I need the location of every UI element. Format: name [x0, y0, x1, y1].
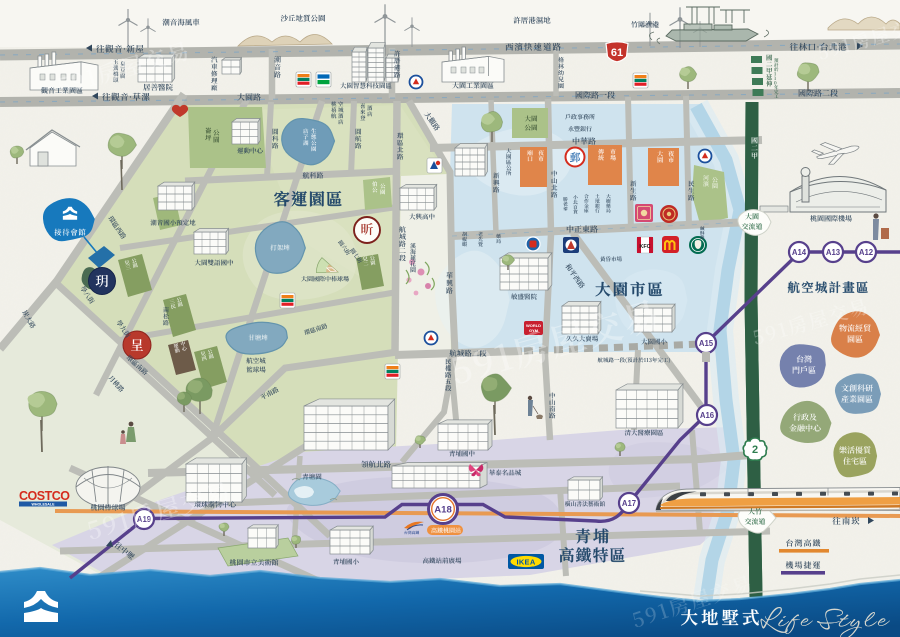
svg-text:IKEA: IKEA — [516, 557, 535, 566]
svg-text:A12: A12 — [859, 248, 874, 257]
svg-text:A17: A17 — [622, 499, 636, 508]
svg-text:A15: A15 — [699, 339, 714, 348]
svg-text:KFC: KFC — [639, 244, 650, 250]
svg-text:COSTCO: COSTCO — [19, 489, 70, 503]
svg-text:A18: A18 — [434, 504, 452, 515]
svg-text:WHOLESALE: WHOLESALE — [32, 503, 56, 507]
svg-text:A14: A14 — [792, 248, 807, 257]
svg-text:61: 61 — [611, 47, 623, 59]
svg-text:2: 2 — [752, 444, 758, 456]
svg-text:A13: A13 — [826, 248, 841, 257]
svg-text:A16: A16 — [700, 411, 715, 420]
